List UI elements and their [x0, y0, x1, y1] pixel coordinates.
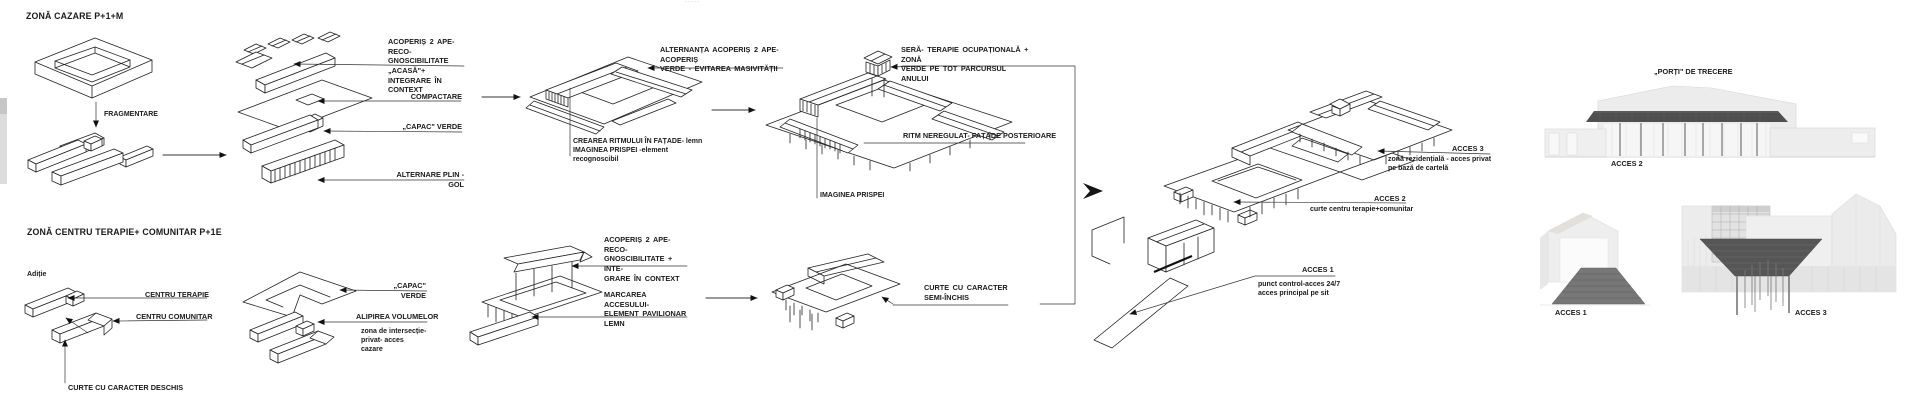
label-acces2-desc: curte centru terapie+comunitar: [1310, 205, 1413, 214]
label-acces3-title: ACCES 3: [1452, 144, 1484, 154]
label-capac-verde-2: „CAPAC" VERDE: [368, 281, 426, 300]
big-arrow-icon: [1083, 183, 1103, 199]
render-acces2: [1545, 86, 1875, 157]
label-acces2-title: ACCES 2: [1374, 194, 1406, 204]
diagram-curte-semi: [772, 254, 900, 330]
page-edge-artifact: [0, 98, 7, 184]
page-top-marks: ·····: [685, 0, 700, 5]
label-imaginea-prispei: IMAGINEA PRISPEI: [820, 191, 884, 200]
label-acces3-desc: zonă rezidențială - acces privat pe bază…: [1388, 155, 1492, 173]
label-acoperis-2-ape-2: ACOPERIȘ 2 APE- RECO- GNOSCIBILITATE + I…: [604, 235, 688, 283]
label-acces1-title: ACCES 1: [1302, 265, 1334, 275]
diagram-fragmentare: [28, 133, 153, 185]
label-aditie: Adiție: [27, 270, 46, 279]
label-acces1-desc: punct control-acces 24/7 acces principal…: [1258, 280, 1340, 298]
label-curte-semi: CURTE CU CARACTER SEMI-ÎNCHIS: [924, 283, 1010, 302]
label-render-acces3: ACCES 3: [1795, 308, 1827, 318]
label-fragmentare: FRAGMENTARE: [104, 110, 158, 119]
render-acces3: [1682, 194, 1896, 315]
label-centru-terapie: CENTRU TERAPIE: [145, 290, 209, 300]
section-title-terapie: ZONĂ CENTRU TERAPIE+ COMUNITAR P+1E: [27, 227, 222, 239]
label-porti-de-trecere: „PORȚI" DE TRECERE: [1654, 67, 1732, 77]
label-marcarea: MARCAREA ACCESULUI- ELEMENT PAVILIONAR L…: [604, 290, 688, 329]
label-sera: SERĂ- TERAPIE OCUPAȚIONALĂ + ZONĂ VERDE …: [901, 45, 1029, 84]
section-title-cazare: ZONĂ CAZARE P+1+M: [26, 11, 123, 23]
label-alipirea: ALIPIREA VOLUMELOR: [356, 312, 438, 322]
diagram-explodat: [236, 32, 372, 183]
diagram-pavilion: [470, 246, 602, 345]
diagram-capac-verde: [243, 272, 356, 363]
label-acoperis-2-ape: ACOPERIȘ 2 APE- RECO- GNOSCIBILITATE „AC…: [388, 37, 466, 95]
label-compactare: COMPACTARE: [388, 92, 462, 102]
render-acces1: [1540, 213, 1650, 305]
label-render-acces1: ACCES 1: [1555, 308, 1587, 318]
concept-diagram-board: ····· ZONĂ CAZARE P+1+M FRAGMENTARE ACOP…: [0, 0, 1920, 404]
label-alternare-plin-gol: ALTERNARE PLIN -GOL: [388, 170, 464, 189]
diagram-aditie: [25, 288, 112, 343]
label-capac-verde: „CAPAC" VERDE: [388, 122, 462, 132]
leader-curte-semi: [882, 297, 893, 304]
label-crearea-ritmului: CREAREA RITMULUI ÎN FAȚADE- lemn IMAGINE…: [573, 137, 713, 165]
label-curte-deschisa: CURTE CU CARACTER DESCHIS: [68, 383, 183, 393]
diagram-volum-initial: [35, 38, 152, 98]
label-ritm-neregulat: RITM NEREGULAT- FAȚADE POSTERIOARE: [903, 131, 1056, 141]
label-render-acces2: ACCES 2: [1611, 159, 1643, 169]
label-centru-comunitar: CENTRU COMUNITAR: [136, 312, 212, 322]
label-zona-intersectie: zona de intersecție- privat- acces cazar…: [361, 327, 427, 355]
label-alternanta: ALTERNANȚA ACOPERIȘ 2 APE-ACOPERIȘ VERDE…: [660, 45, 788, 74]
